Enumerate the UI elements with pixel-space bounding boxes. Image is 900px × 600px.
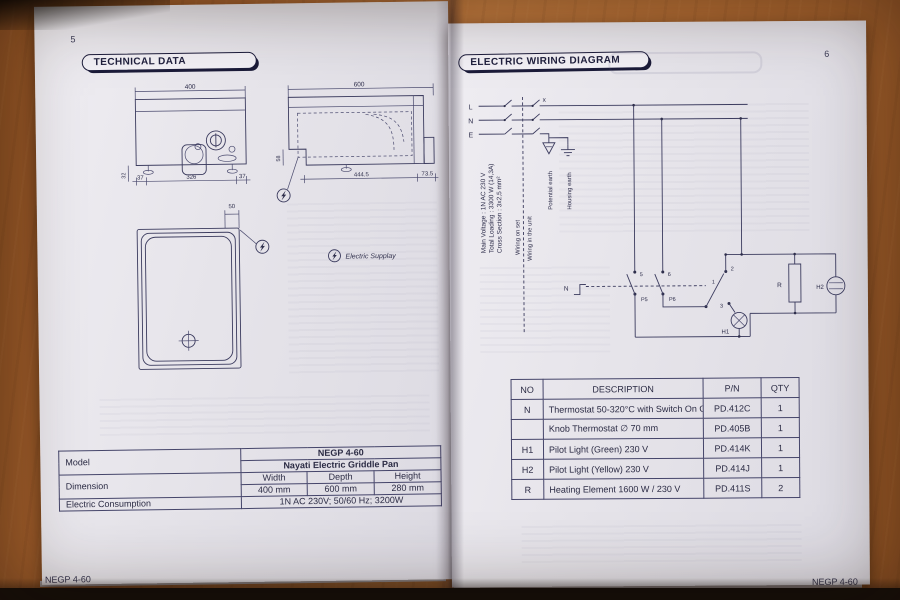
housing-earth-label: Housing earth (567, 172, 573, 209)
top-left-shadow (0, 0, 170, 30)
changeover-contact: 2 1 3 (704, 266, 735, 312)
part-description: Thermostat 50-320°C with Switch On Off (543, 398, 703, 419)
part-no: H2 (512, 459, 544, 479)
side-dim-444-5: 444.5 (354, 172, 370, 178)
front-dim-37-right: 37 (239, 174, 246, 180)
front-dim-400: 400 (185, 84, 196, 91)
right-page: 6 ELECTRIC WIRING DIAGRAM L N E x (448, 21, 870, 588)
model-label: Model (59, 449, 241, 476)
wiring-in-unit-label: Wiring in the unit (527, 216, 533, 261)
front-view-drawing: 400 37 326 (120, 83, 250, 186)
pilot-lamp-h2: H2 (816, 277, 845, 295)
part-qty: 1 (762, 458, 800, 478)
electric-supply-icon (332, 251, 337, 260)
table-row: N Thermostat 50-320°C with Switch On Off… (511, 398, 799, 420)
part-description: Heating Element 1600 W / 230 V (544, 478, 704, 499)
consumption-value: 1N AC 230V; 50/60 Hz; 3200W (241, 494, 441, 509)
dim-value-depth: 600 mm (307, 483, 374, 496)
part-number: PD.405B (703, 418, 761, 438)
plan-view-drawing: 50 (137, 204, 271, 370)
phase-label-l: L (469, 104, 473, 111)
part-description: Pilot Light (Green) 230 V (543, 438, 703, 459)
housing-earth-symbol (561, 145, 575, 156)
dim-header-width: Width (241, 472, 307, 485)
r-label: R (777, 282, 782, 289)
header-no: NO (511, 379, 543, 399)
part-qty: 1 (761, 398, 799, 418)
part-no (511, 419, 543, 439)
h1-label: H1 (722, 330, 730, 336)
side-dim-600: 600 (354, 81, 365, 88)
part-no: N (511, 399, 543, 419)
bottom-dark-band (0, 588, 900, 600)
side-dim-73-5: 73.5 (421, 171, 433, 177)
spec-cross-section: Cross Section : 3x2,5 mm² (496, 176, 504, 253)
terminal-1-label: 1 (712, 280, 715, 286)
part-qty: 1 (761, 418, 799, 438)
header-pn: P/N (703, 378, 761, 398)
dim-value-height: 280 mm (374, 482, 441, 495)
contact-p6-label: P6 (669, 297, 676, 303)
potential-earth-label: Potential earth (548, 171, 554, 210)
spec-main-voltage: Main Voltage : 1N AC 230 V (480, 172, 488, 253)
x-mark: x (543, 97, 547, 104)
thermostat-contact-5: 5 P5 (627, 271, 648, 304)
front-dim-32: 32 (121, 173, 127, 179)
electric-supply-label: Electric Supplay (345, 253, 396, 261)
terminal-3-label: 3 (720, 304, 723, 310)
phase-label-e: E (468, 132, 473, 139)
part-number: PD.414J (704, 458, 762, 478)
wiring-diagram: L N E x (448, 21, 870, 588)
part-description: Pilot Light (Yellow) 230 V (544, 458, 704, 479)
contact-6-label: 6 (668, 272, 671, 278)
dim-header-height: Height (374, 470, 441, 483)
table-row: R Heating Element 1600 W / 230 V PD.411S… (512, 478, 800, 500)
electric-supply-icon (281, 190, 286, 200)
part-no: R (512, 479, 544, 499)
table-row: H2 Pilot Light (Yellow) 230 V PD.414J 1 (512, 458, 800, 480)
electric-supply-legend: Electric Supplay (328, 249, 396, 262)
parts-table: NO DESCRIPTION P/N QTY N Thermostat 50-3… (511, 377, 801, 500)
spec-total-loading: Total Loading : 3300 W (14,3A) (488, 164, 496, 254)
bleedthrough-capsule (608, 51, 762, 74)
photo-of-open-manual: 5 TECHNICAL DATA 400 (0, 0, 900, 600)
part-number: PD.411S (704, 478, 762, 498)
part-description: Knob Thermostat ∅ 70 mm (543, 418, 703, 439)
thermostat-contact-6: 6 P6 (655, 270, 676, 303)
thermostat-n-label: N (564, 286, 569, 293)
dim-header-depth: Depth (307, 471, 374, 484)
front-dim-326: 326 (186, 175, 197, 181)
phase-label-n: N (468, 118, 473, 125)
part-qty: 2 (762, 478, 800, 498)
side-view-drawing: 600 444.5 73.5 58 (275, 80, 439, 202)
terminal-2-label: 2 (731, 266, 734, 272)
dimension-label: Dimension (59, 473, 241, 500)
front-dim-37-left: 37 (137, 175, 144, 181)
header-description: DESCRIPTION (543, 378, 703, 399)
consumption-label: Electric Consumption (59, 497, 241, 512)
contact-p5-label: P5 (641, 297, 648, 303)
part-number: PD.412C (703, 398, 761, 418)
header-qty: QTY (761, 378, 799, 398)
wiring-on-set-label: Wiring on set (515, 220, 521, 255)
part-qty: 1 (761, 438, 799, 458)
plan-dim-50: 50 (228, 204, 235, 210)
part-no: H1 (511, 439, 543, 459)
electric-supply-icon (260, 242, 265, 252)
specification-table: Model NEGP 4-60 Nayati Electric Griddle … (58, 445, 442, 511)
side-dim-58: 58 (276, 155, 282, 161)
left-page: 5 TECHNICAL DATA 400 (34, 1, 456, 585)
table-row: Knob Thermostat ∅ 70 mm PD.405B 1 (511, 418, 799, 440)
contact-5-label: 5 (640, 272, 643, 278)
table-header-row: NO DESCRIPTION P/N QTY (511, 378, 799, 400)
dim-value-width: 400 mm (241, 484, 307, 497)
pilot-lamp-h1: H1 (721, 312, 747, 335)
table-row: H1 Pilot Light (Green) 230 V PD.414K 1 (511, 438, 799, 460)
h2-label: H2 (816, 285, 824, 291)
potential-earth-symbol (543, 143, 555, 154)
heating-element-r: R (777, 264, 801, 302)
part-number: PD.414K (703, 438, 761, 458)
